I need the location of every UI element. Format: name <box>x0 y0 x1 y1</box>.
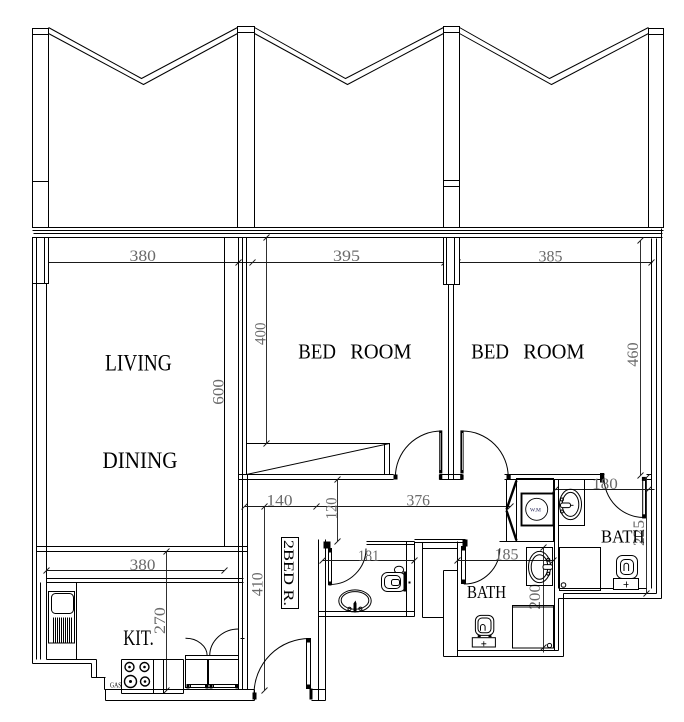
svg-text:385: 385 <box>539 249 563 266</box>
svg-text:181: 181 <box>358 548 379 565</box>
svg-text:GAS: GAS <box>110 680 122 689</box>
svg-text:410: 410 <box>250 572 267 596</box>
svg-text:376: 376 <box>407 493 431 510</box>
svg-text:380: 380 <box>130 557 156 574</box>
svg-text:KIT.: KIT. <box>123 625 154 650</box>
svg-text:120: 120 <box>324 497 341 519</box>
svg-text:180: 180 <box>592 476 618 493</box>
svg-text:395: 395 <box>333 248 360 265</box>
svg-text:600: 600 <box>211 379 228 405</box>
svg-text:2BED R.: 2BED R. <box>280 540 296 606</box>
svg-text:400: 400 <box>253 323 270 346</box>
svg-text:LIVING: LIVING <box>105 350 172 376</box>
svg-text:BATH: BATH <box>601 527 645 547</box>
svg-text:BATH: BATH <box>467 582 506 602</box>
svg-text:BED: BED <box>471 339 509 363</box>
svg-text:W.M: W.M <box>530 508 541 514</box>
svg-text:460: 460 <box>625 342 642 366</box>
svg-text:BED: BED <box>298 339 336 363</box>
svg-text:ROOM: ROOM <box>523 339 584 363</box>
svg-text:185: 185 <box>495 547 519 564</box>
svg-text:270: 270 <box>152 607 169 634</box>
svg-text:ROOM: ROOM <box>350 339 411 363</box>
svg-text:140: 140 <box>267 493 293 510</box>
svg-text:380: 380 <box>130 248 157 265</box>
svg-text:DINING: DINING <box>103 448 178 474</box>
